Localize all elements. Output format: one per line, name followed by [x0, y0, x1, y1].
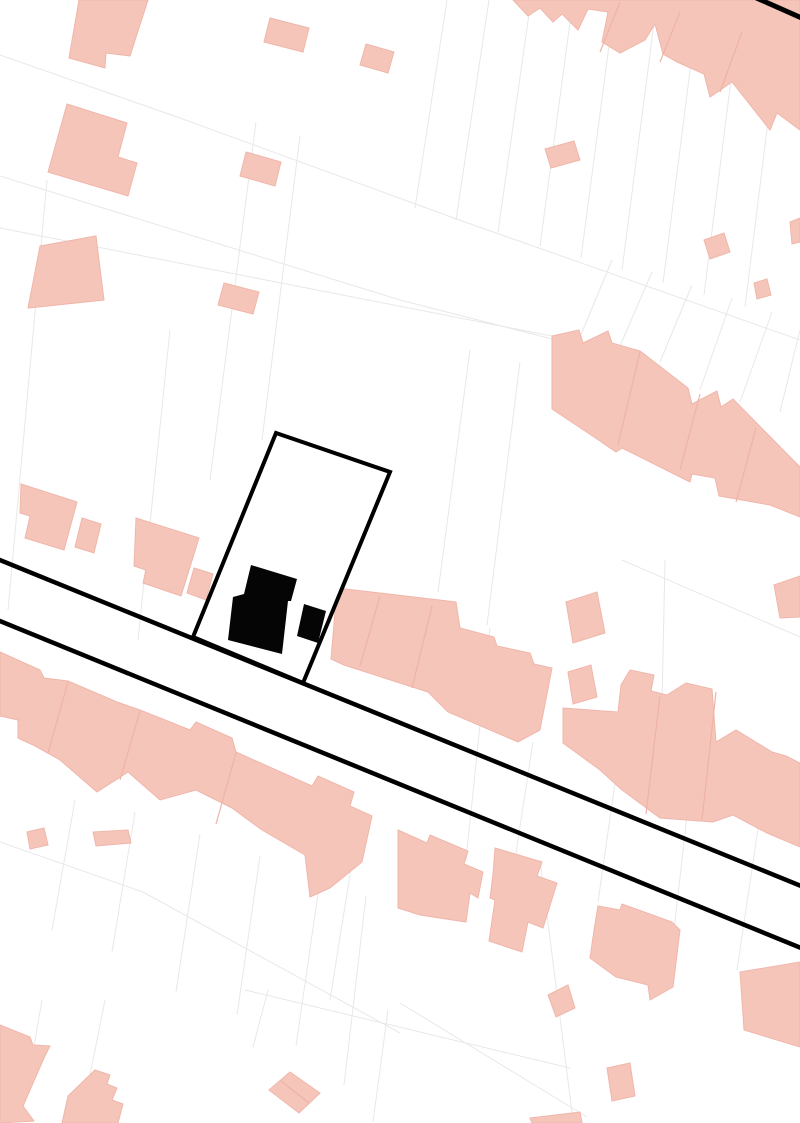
building [27, 828, 48, 849]
building [607, 1063, 635, 1101]
building [93, 830, 131, 846]
building [790, 218, 800, 244]
location-plan-map [0, 0, 800, 1123]
map-canvas [0, 0, 800, 1123]
building [28, 236, 104, 308]
